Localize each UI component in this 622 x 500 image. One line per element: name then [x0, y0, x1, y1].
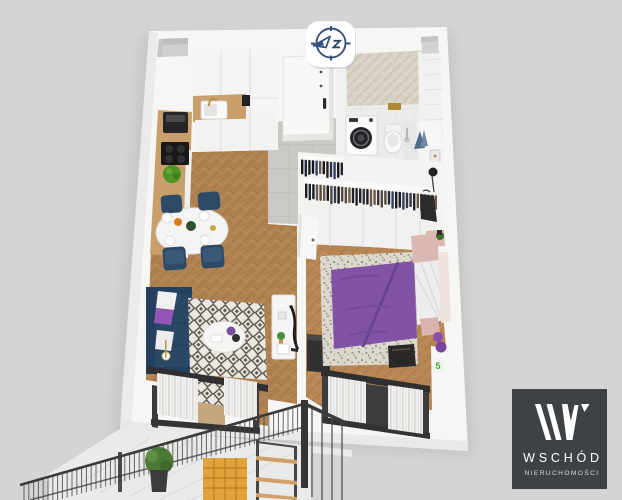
- svg-text:WSCHÓD: WSCHÓD: [523, 450, 603, 465]
- svg-text:NIERUCHOMOŚCI: NIERUCHOMOŚCI: [525, 468, 600, 477]
- svg-text:5: 5: [435, 361, 440, 371]
